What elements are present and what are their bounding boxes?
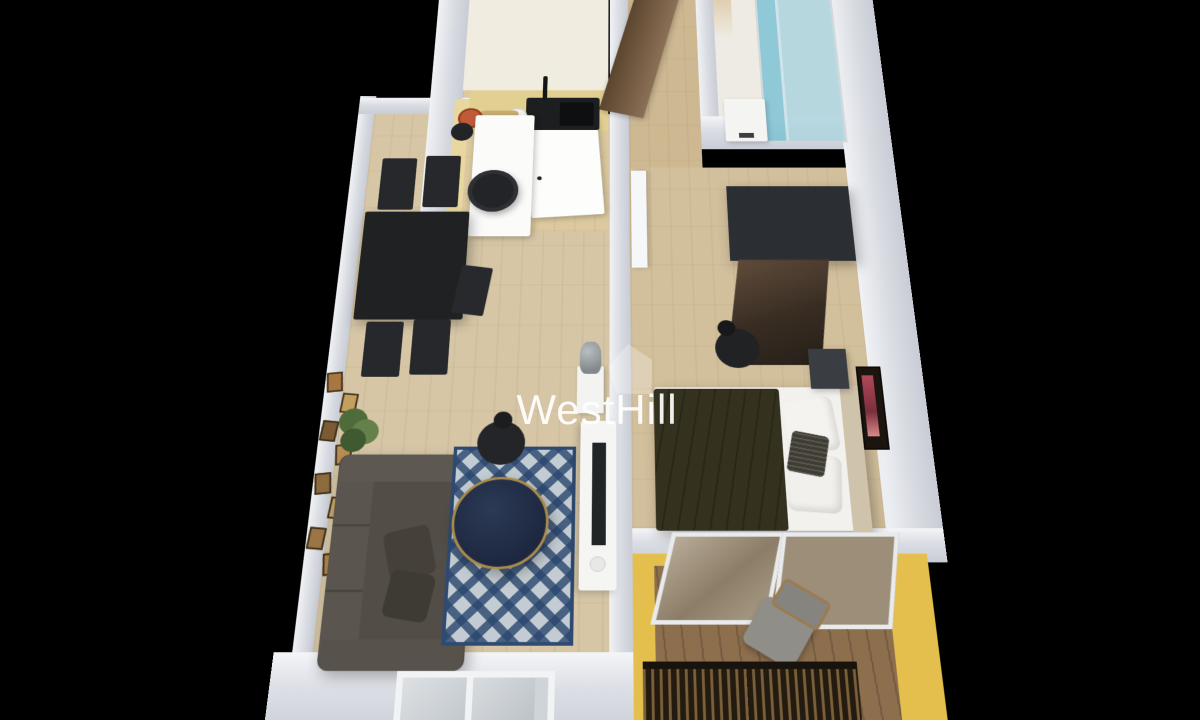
bed-duvet [654,389,789,531]
apartment-floorplan [281,0,943,720]
balcony-railing [643,662,865,720]
living-window [390,671,555,720]
kitchen-living-door [527,116,605,218]
wardrobe [726,186,856,261]
potted-plant [332,402,384,456]
bedroom-lamp-head [717,320,736,336]
door-handle [537,176,542,180]
glass-shower [753,0,848,143]
bathroom-tan-streak [711,0,733,37]
bedroom-door [631,171,648,268]
gallery-frame [314,472,331,495]
tv [592,443,606,546]
washer-unit [724,99,768,141]
washer-detail [739,133,754,138]
dining-chair-4 [409,320,451,375]
dining-chair-3 [361,322,404,377]
dining-chair-1 [377,158,417,209]
sink-basin [559,102,593,125]
gallery-frame [327,372,343,393]
wall-art-image [861,375,879,436]
nightstand [808,349,850,389]
kitchen-back-counter-zone [463,0,609,90]
window-pane-left [399,678,467,720]
window-pane-right [471,678,536,720]
console-decor [590,556,606,572]
gallery-frame [306,527,327,550]
dining-chair-2 [422,156,461,207]
plant-foliage [339,429,367,453]
faucet [543,76,548,100]
statue [580,342,602,374]
kitchen-sink [525,98,599,130]
floorplan-stage: WestHill [0,0,1200,720]
accent-cushion [786,430,829,478]
tv-console [579,421,617,591]
